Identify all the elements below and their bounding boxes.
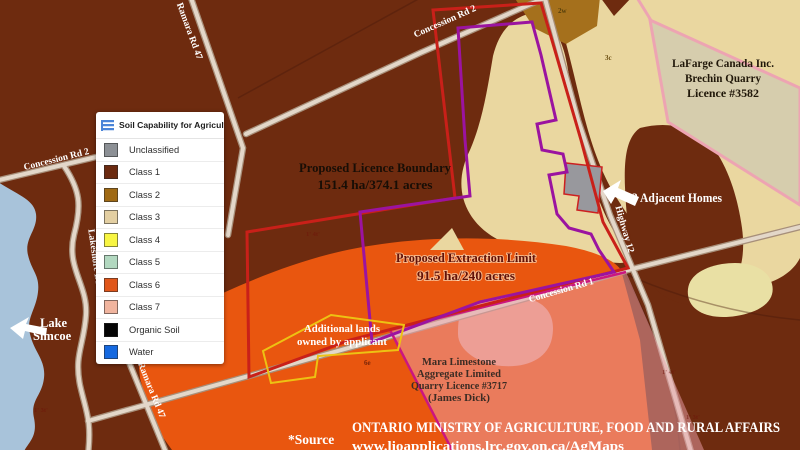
legend-item-label: Class 2	[129, 190, 160, 200]
legend-item: Water	[96, 342, 224, 364]
legend-item-label: Class 1	[129, 167, 160, 177]
source-ministry: ONTARIO MINISTRY OF AGRICULTURE, FOOD AN…	[352, 420, 780, 436]
legend-swatch	[104, 345, 118, 359]
source-prefix: *Source	[288, 432, 334, 447]
additional-lands-label-line1: Additional lands	[304, 323, 381, 335]
legend-item-label: Organic Soil	[129, 325, 180, 335]
legend-swatch	[104, 300, 118, 314]
legend-item-label: Class 7	[129, 302, 160, 312]
legend-swatch	[104, 255, 118, 269]
legend-item: Class 2	[96, 184, 224, 207]
legend-item: Class 3	[96, 207, 224, 230]
parcel-code-6e: 6e	[364, 359, 371, 367]
legend-swatch	[104, 233, 118, 247]
adjacent-homes-label: 3 Adjacent Homes	[632, 191, 722, 205]
legend-item: Class 7	[96, 297, 224, 320]
legend-swatch	[104, 278, 118, 292]
legend-item-label: Class 4	[129, 235, 160, 245]
legend-panel: Soil Capability for Agriculture Unclassi…	[96, 112, 224, 364]
parcel-code-3c: 3c	[605, 54, 612, 62]
legend-item: Class 5	[96, 252, 224, 275]
mara-label-line4: (James Dick)	[428, 392, 490, 404]
mara-label-line1: Mara Limestone	[422, 356, 496, 368]
parcel-code-2w: 2w	[558, 7, 568, 15]
svg-text:1' 4t': 1' 4t'	[662, 369, 676, 376]
layers-icon	[101, 120, 114, 131]
mara-label-line2: Aggregate Limited	[417, 368, 501, 380]
map-canvas[interactable]: Concession Rd 2 Ramara Rd 47 Concession …	[0, 0, 800, 450]
svg-text:1' 3t': 1' 3t'	[34, 407, 48, 414]
legend-swatch	[104, 143, 118, 157]
source-url: www.lioapplications.lrc.gov.on.ca/AgMaps	[352, 440, 625, 450]
legend-item: Class 6	[96, 274, 224, 297]
legend-item: Unclassified	[96, 139, 224, 162]
lafarge-label-line2: Brechin Quarry	[685, 71, 761, 85]
legend-item: Organic Soil	[96, 319, 224, 342]
legend-item-label: Unclassified	[129, 145, 179, 155]
mara-label-line3: Quarry Licence #3717	[411, 380, 507, 392]
lake-label-line2: Simcoe	[33, 329, 72, 343]
extraction-limit-label-line2: 91.5 ha/240 acres	[417, 268, 515, 283]
licence-boundary-label-line2: 151.4 ha/374.1 acres	[318, 178, 433, 192]
extraction-limit-label-line1: Proposed Extraction Limit	[396, 250, 537, 265]
legend-item-label: Class 6	[129, 280, 160, 290]
svg-text:1' 4t': 1' 4t'	[306, 231, 320, 238]
lake-label-line1: Lake	[40, 316, 68, 330]
legend-item: Class 1	[96, 162, 224, 185]
legend-item-label: Class 3	[129, 212, 160, 222]
legend-swatch	[104, 165, 118, 179]
legend-title: Soil Capability for Agriculture	[119, 120, 224, 130]
legend-header: Soil Capability for Agriculture	[96, 112, 224, 139]
legend-swatch	[104, 323, 118, 337]
additional-lands-label-line2: owned by applicant	[297, 336, 387, 348]
legend-swatch	[104, 210, 118, 224]
licence-boundary-label-line1: Proposed Licence Boundary	[299, 161, 452, 175]
legend-item-label: Class 5	[129, 257, 160, 267]
legend-item-label: Water	[129, 347, 153, 357]
legend-item: Class 4	[96, 229, 224, 252]
lafarge-label-line1: LaFarge Canada Inc.	[672, 56, 774, 70]
lafarge-label-line3: Licence #3582	[687, 86, 759, 100]
legend-swatch	[104, 188, 118, 202]
